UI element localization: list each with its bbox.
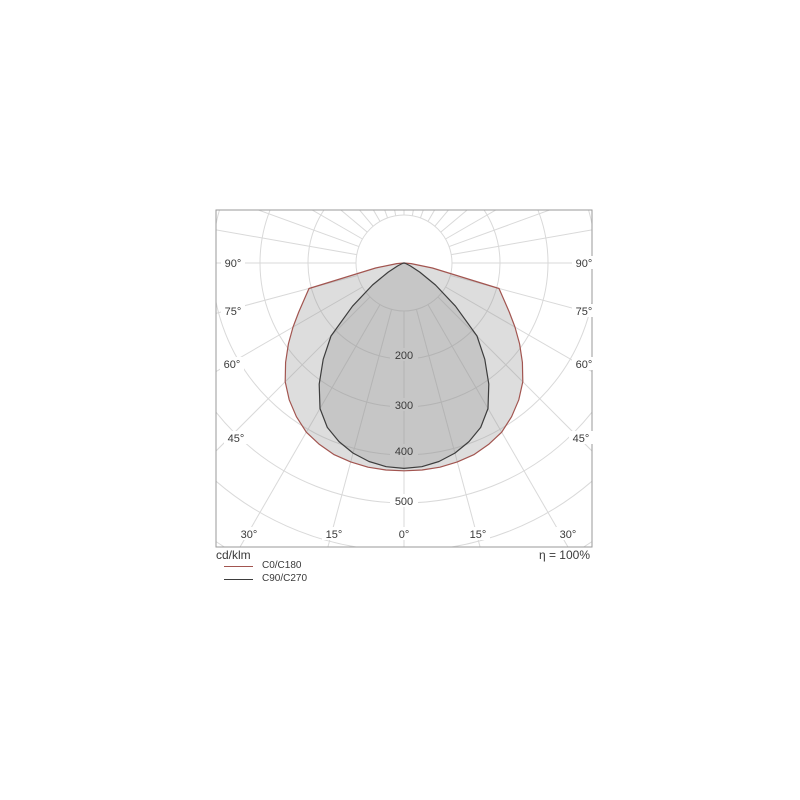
angular-grid-spoke — [412, 0, 464, 216]
legend-line-c90-c270 — [224, 579, 253, 580]
axis-label: 90° — [576, 258, 593, 270]
axis-label: 60° — [224, 359, 241, 371]
axis-label: 75° — [225, 306, 242, 318]
angular-grid-spoke — [286, 0, 388, 218]
angular-grid-spoke — [232, 0, 381, 221]
axis-label: 45° — [228, 433, 245, 445]
axis-label: 15° — [470, 529, 487, 541]
axis-label: 45° — [573, 433, 590, 445]
angular-grid-spoke — [441, 41, 669, 232]
angular-grid-spoke — [428, 0, 577, 221]
angular-grid-spoke — [449, 145, 728, 247]
axis-label: 300 — [395, 400, 413, 412]
legend-label-c0-c180: C0/C180 — [262, 561, 301, 571]
legend-label-c90-c270: C90/C270 — [262, 574, 307, 584]
polar-grid-and-curves — [59, 0, 749, 608]
angular-grid-spoke — [80, 145, 359, 247]
axis-label: 75° — [576, 306, 593, 318]
legend-item-c90-c270: C90/C270 — [224, 574, 307, 584]
axis-label: 15° — [326, 529, 343, 541]
axis-label: 200 — [395, 350, 413, 362]
efficiency-label: η = 100% — [460, 548, 590, 562]
angular-grid-spoke — [435, 0, 626, 226]
legend-item-c0-c180: C0/C180 — [224, 561, 307, 571]
angular-grid-spoke — [344, 0, 396, 216]
axis-label: 400 — [395, 446, 413, 458]
angular-grid-spoke — [140, 41, 368, 232]
axis-label: 0° — [399, 529, 410, 541]
angular-grid-spoke — [420, 0, 522, 218]
angular-grid-spoke — [446, 91, 703, 240]
axis-label: 30° — [241, 529, 258, 541]
axis-label: 60° — [576, 359, 593, 371]
angular-grid-spoke — [182, 0, 373, 226]
unit-label: cd/klm — [216, 548, 251, 562]
angular-grid-spoke — [105, 91, 362, 240]
photometric-report-canvas: 20030040050090°75°60°45°30°15°0°15°90°75… — [0, 0, 800, 800]
legend-line-c0-c180 — [224, 566, 253, 567]
photometric-polar-chart: 20030040050090°75°60°45°30°15°0°15°90°75… — [0, 0, 800, 800]
axis-label: 30° — [560, 529, 577, 541]
legend: C0/C180 C90/C270 — [224, 561, 307, 584]
axis-label: 90° — [225, 258, 242, 270]
axis-label: 500 — [395, 496, 413, 508]
